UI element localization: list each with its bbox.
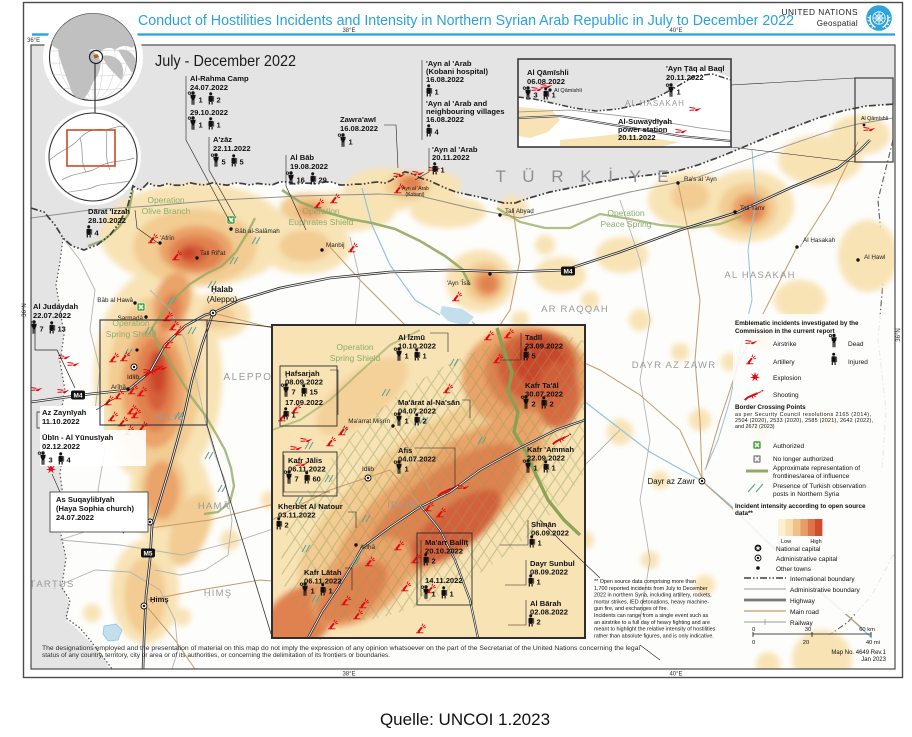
svg-text:Al Ḥawl: Al Ḥawl: [864, 254, 885, 261]
svg-text:36°E: 36°E: [27, 38, 40, 44]
svg-text:5: 5: [222, 158, 226, 167]
svg-text:posts in Northern Syria: posts in Northern Syria: [773, 491, 839, 498]
svg-text:Al Judaydah: Al Judaydah: [33, 302, 79, 311]
svg-text:Shooting: Shooting: [773, 392, 799, 399]
svg-text:1: 1: [534, 464, 538, 473]
svg-text:1: 1: [552, 464, 556, 473]
svg-text:60 km: 60 km: [859, 627, 875, 633]
svg-text:14.11.2022: 14.11.2022: [425, 576, 463, 585]
svg-text:Dārat 'Izzah: Dārat 'Izzah: [88, 207, 130, 216]
svg-text:13: 13: [58, 325, 66, 334]
svg-text:19.08.2022: 19.08.2022: [290, 162, 328, 171]
svg-text:1: 1: [423, 352, 427, 361]
svg-text:Ḥimş: Ḥimş: [150, 595, 169, 604]
svg-text:16.08.2022: 16.08.2022: [340, 124, 378, 133]
svg-text:1: 1: [450, 590, 454, 599]
svg-text:1: 1: [538, 539, 542, 548]
svg-text:and 2672 (2023): and 2672 (2023): [735, 424, 775, 430]
svg-text:an airstrike to a full day of: an airstrike to a full day of heavy figh…: [594, 620, 710, 626]
svg-text:22.11.2022: 22.11.2022: [213, 144, 251, 153]
svg-text:Dayr az Zawr: Dayr az Zawr: [647, 477, 695, 486]
svg-text:02.12.2022: 02.12.2022: [42, 442, 80, 451]
svg-text:Operation: Operation: [336, 342, 374, 352]
svg-text:Tall Rif'at: Tall Rif'at: [200, 250, 226, 257]
svg-text:Peace Spring: Peace Spring: [600, 219, 651, 229]
svg-text:meant to highlight the relativ: meant to highlight the relative intensit…: [594, 627, 716, 633]
svg-text:1: 1: [329, 587, 333, 596]
svg-text:Airstrike: Airstrike: [773, 341, 797, 348]
svg-text:(Haya Sophia church): (Haya Sophia church): [56, 504, 135, 513]
svg-text:1,700 reported incidents from: 1,700 reported incidents from July to De…: [594, 586, 708, 592]
svg-text:36°N: 36°N: [896, 328, 902, 341]
svg-text:Operation: Operation: [147, 195, 185, 205]
svg-text:Low: Low: [781, 539, 791, 545]
svg-text:38°E: 38°E: [342, 672, 355, 678]
svg-text:Ma'arrat Mişrīn: Ma'arrat Mişrīn: [348, 418, 390, 425]
svg-text:5: 5: [532, 352, 536, 361]
svg-text:2: 2: [217, 96, 221, 105]
svg-text:Explosion: Explosion: [773, 375, 802, 382]
svg-text:Al Qāmīshli: Al Qāmīshli: [527, 68, 569, 77]
svg-text:16: 16: [297, 176, 305, 185]
svg-text:Presence of Turkish observatio: Presence of Turkish observation: [773, 483, 866, 490]
svg-text:1: 1: [405, 417, 409, 426]
svg-text:T Ü R K İ Y E: T Ü R K İ Y E: [495, 167, 674, 186]
svg-text:2: 2: [423, 417, 427, 426]
svg-text:Highway: Highway: [790, 598, 816, 605]
svg-text:24.07.2022: 24.07.2022: [56, 513, 94, 522]
svg-text:30: 30: [805, 627, 811, 633]
svg-text:Operation: Operation: [607, 208, 645, 218]
svg-text:IDLIB: IDLIB: [387, 500, 417, 511]
svg-text:M5: M5: [143, 551, 152, 558]
svg-text:04.07.2022: 04.07.2022: [398, 455, 436, 464]
svg-text:06.08.2022: 06.08.2022: [527, 77, 565, 86]
svg-text:16.08.2022: 16.08.2022: [426, 75, 464, 84]
svg-text:2: 2: [532, 400, 536, 409]
svg-text:Euphrates Shield: Euphrates Shield: [289, 217, 354, 227]
svg-text:AL ḤASAKAH: AL ḤASAKAH: [625, 99, 685, 108]
svg-text:** Open source data comprising: ** Open source data comprising more than: [594, 579, 696, 585]
svg-text:(Aleppo): (Aleppo): [207, 295, 238, 304]
svg-text:'Ayn 'Īsā: 'Ayn 'Īsā: [447, 279, 471, 287]
svg-text:Spring Shield: Spring Shield: [330, 353, 381, 363]
svg-text:Sarmadā: Sarmadā: [117, 315, 143, 322]
svg-text:As Suqaylibīyah: As Suqaylibīyah: [56, 495, 115, 504]
svg-text:36°N: 36°N: [22, 303, 28, 316]
svg-text:Manbij: Manbij: [326, 242, 345, 249]
svg-text:Al Bāb: Al Bāb: [290, 153, 314, 162]
svg-text:2: 2: [285, 521, 289, 530]
svg-text:0: 0: [752, 627, 755, 633]
svg-text:1: 1: [537, 578, 541, 587]
svg-text:Arīḥā: Arīḥā: [360, 544, 376, 551]
svg-text:17.09.2022: 17.09.2022: [285, 398, 323, 407]
svg-text:data**: data**: [735, 510, 753, 517]
svg-text:'Ayn Ṭāq al Baql: 'Ayn Ṭāq al Baql: [666, 64, 725, 73]
svg-text:1: 1: [405, 352, 409, 361]
svg-text:ṬARṬUS: ṬARṬUS: [29, 579, 74, 590]
svg-text:Jan 2023: Jan 2023: [861, 657, 886, 663]
svg-text:1: 1: [441, 166, 445, 175]
svg-text:Zawra'awī: Zawra'awī: [340, 115, 377, 124]
svg-text:0: 0: [752, 640, 755, 646]
svg-text:Tall Tamr: Tall Tamr: [740, 205, 765, 212]
svg-text:mortar strikes, IED detonation: mortar strikes, IED detonations, heavy m…: [594, 599, 709, 605]
svg-text:3: 3: [534, 91, 538, 100]
svg-text:29.10.2022: 29.10.2022: [190, 108, 228, 117]
svg-text:1: 1: [292, 411, 296, 420]
svg-text:Ḥalab: Ḥalab: [211, 285, 233, 294]
svg-text:1: 1: [311, 587, 315, 596]
svg-text:08.09.2022: 08.09.2022: [530, 568, 568, 577]
svg-text:Al Qāmishli: Al Qāmishli: [554, 88, 582, 94]
svg-text:Administrative capital: Administrative capital: [776, 556, 838, 563]
svg-text:International boundary: International boundary: [790, 576, 855, 583]
svg-text:7: 7: [295, 475, 299, 484]
svg-text:The designations employed and: The designations employed and the presen…: [42, 646, 640, 652]
svg-text:Main road: Main road: [790, 609, 819, 616]
svg-text:Al-Rahma Camp: Al-Rahma Camp: [190, 74, 249, 83]
svg-text:High: High: [810, 539, 821, 545]
svg-text:20.11.2022: 20.11.2022: [432, 153, 470, 162]
svg-text:22.07.2022: 22.07.2022: [33, 311, 71, 320]
svg-text:1: 1: [199, 121, 203, 130]
svg-text:1: 1: [677, 88, 681, 97]
svg-text:Other towns: Other towns: [776, 566, 812, 573]
svg-text:03.11.2022: 03.11.2022: [278, 511, 316, 520]
svg-text:1: 1: [217, 121, 221, 130]
svg-text:UNITED NATIONS: UNITED NATIONS: [782, 7, 858, 17]
svg-text:M4: M4: [563, 269, 572, 276]
svg-text:Idlib: Idlib: [362, 466, 374, 473]
svg-text:02.08.2022: 02.08.2022: [530, 608, 568, 617]
svg-text:AR RAQQAH: AR RAQQAH: [541, 304, 609, 315]
svg-text:status of any country, territo: status of any country, territory, city o…: [42, 653, 390, 659]
svg-text:1: 1: [435, 88, 439, 97]
svg-text:rather than absolute figures,: rather than absolute figures, and is onl…: [594, 633, 714, 639]
svg-text:Incidents can range from a sin: Incidents can range from a single event …: [594, 613, 708, 619]
svg-text:Al Qāmīshli: Al Qāmīshli: [861, 116, 888, 122]
svg-text:Geospatial: Geospatial: [817, 19, 858, 28]
svg-text:23.09.2022: 23.09.2022: [525, 342, 563, 351]
svg-text:Commission in the current repo: Commission in the current report: [735, 328, 836, 335]
svg-text:July - December 2022: July - December 2022: [155, 53, 296, 70]
svg-text:40°E: 40°E: [669, 672, 682, 678]
svg-text:IDLIB: IDLIB: [155, 412, 185, 423]
svg-text:20.10.2022: 20.10.2022: [425, 547, 463, 556]
svg-text:Artillery: Artillery: [773, 359, 795, 366]
svg-text:Az Zaynīyah: Az Zaynīyah: [42, 408, 87, 417]
svg-text:Dead: Dead: [848, 341, 864, 348]
svg-text:2: 2: [537, 618, 541, 627]
svg-text:Emblematic incidents investiga: Emblematic incidents investigated by the: [735, 320, 859, 327]
svg-text:Spring Shield: Spring Shield: [106, 329, 157, 339]
svg-text:40°E: 40°E: [669, 28, 682, 34]
svg-text:Bāb al Hawā: Bāb al Hawā: [97, 297, 133, 304]
svg-text:1: 1: [199, 96, 203, 105]
svg-text:2: 2: [432, 557, 436, 566]
svg-text:(Kobani): (Kobani): [406, 192, 425, 198]
svg-text:Al Ḥasakah: Al Ḥasakah: [803, 237, 836, 244]
svg-text:Ūbīn - Al Yūnusīyah: Ūbīn - Al Yūnusīyah: [42, 433, 114, 442]
svg-text:Administrative boundary: Administrative boundary: [790, 587, 860, 594]
svg-text:National capital: National capital: [776, 546, 821, 553]
svg-text:2: 2: [550, 400, 554, 409]
svg-text:20: 20: [803, 640, 809, 646]
svg-text:Border Crossing Points: Border Crossing Points: [735, 404, 806, 411]
svg-text:frontlines/area of influence: frontlines/area of influence: [773, 473, 850, 480]
svg-text:DAYR AZ ZAWR: DAYR AZ ZAWR: [632, 360, 717, 371]
svg-text:1: 1: [432, 590, 436, 599]
svg-text:Ra's al 'Ayn: Ra's al 'Ayn: [684, 176, 717, 183]
svg-text:29: 29: [319, 176, 327, 185]
svg-text:Bāb al-Salāmah: Bāb al-Salāmah: [235, 228, 280, 235]
svg-text:3: 3: [49, 456, 53, 465]
svg-text:7: 7: [40, 325, 44, 334]
svg-text:1: 1: [349, 138, 353, 147]
svg-text:HAMĀ: HAMĀ: [198, 501, 230, 512]
svg-text:M4: M4: [73, 393, 82, 400]
svg-text:Tall Abyaḍ: Tall Abyaḍ: [505, 208, 534, 215]
svg-text:7: 7: [292, 388, 296, 397]
svg-text:20.11.2022: 20.11.2022: [618, 133, 656, 142]
svg-text:40 mi: 40 mi: [866, 640, 880, 646]
svg-text:16.08.2022: 16.08.2022: [426, 115, 464, 124]
svg-text:AL ḤASAKAH: AL ḤASAKAH: [724, 270, 795, 281]
svg-text:Conduct of Hostilities Inciden: Conduct of Hostilities Incidents and Int…: [138, 13, 794, 29]
svg-text:1: 1: [405, 465, 409, 474]
svg-text:No longer authorized: No longer authorized: [773, 456, 834, 463]
svg-text:Olive Branch: Olive Branch: [142, 206, 191, 216]
svg-text:20.11.2022: 20.11.2022: [666, 73, 704, 82]
svg-text:5: 5: [240, 158, 244, 167]
svg-text:Incident intensity according t: Incident intensity according to open sou…: [735, 503, 866, 510]
svg-text:ḤIMŞ: ḤIMŞ: [204, 588, 233, 599]
svg-text:Approximate representation of: Approximate representation of: [773, 465, 860, 472]
svg-text:15: 15: [310, 388, 318, 397]
svg-text:24.07.2022: 24.07.2022: [190, 83, 228, 92]
svg-text:28.10.2022: 28.10.2022: [88, 216, 126, 225]
svg-text:A'zāz: A'zāz: [213, 135, 232, 144]
svg-text:ALEPPO: ALEPPO: [223, 372, 272, 383]
svg-text:gun fire, and exchanges of fir: gun fire, and exchanges of fire.: [594, 606, 668, 612]
svg-text:11.10.2022: 11.10.2022: [42, 417, 80, 426]
svg-text:Arīḥā: Arīḥā: [111, 384, 127, 391]
svg-text:38°E: 38°E: [342, 28, 355, 34]
svg-text:Injured: Injured: [848, 359, 868, 366]
svg-text:60: 60: [313, 475, 321, 484]
svg-text:Idlib: Idlib: [127, 374, 139, 381]
svg-text:Railway: Railway: [790, 620, 814, 627]
svg-text:'Afrīn: 'Afrīn: [160, 235, 175, 242]
svg-text:Map No. 4649 Rev.1: Map No. 4649 Rev.1: [831, 650, 886, 656]
svg-text:Authorized: Authorized: [773, 443, 804, 450]
svg-text:2022 in northern Syria, includ: 2022 in northern Syria, including artill…: [594, 593, 712, 599]
